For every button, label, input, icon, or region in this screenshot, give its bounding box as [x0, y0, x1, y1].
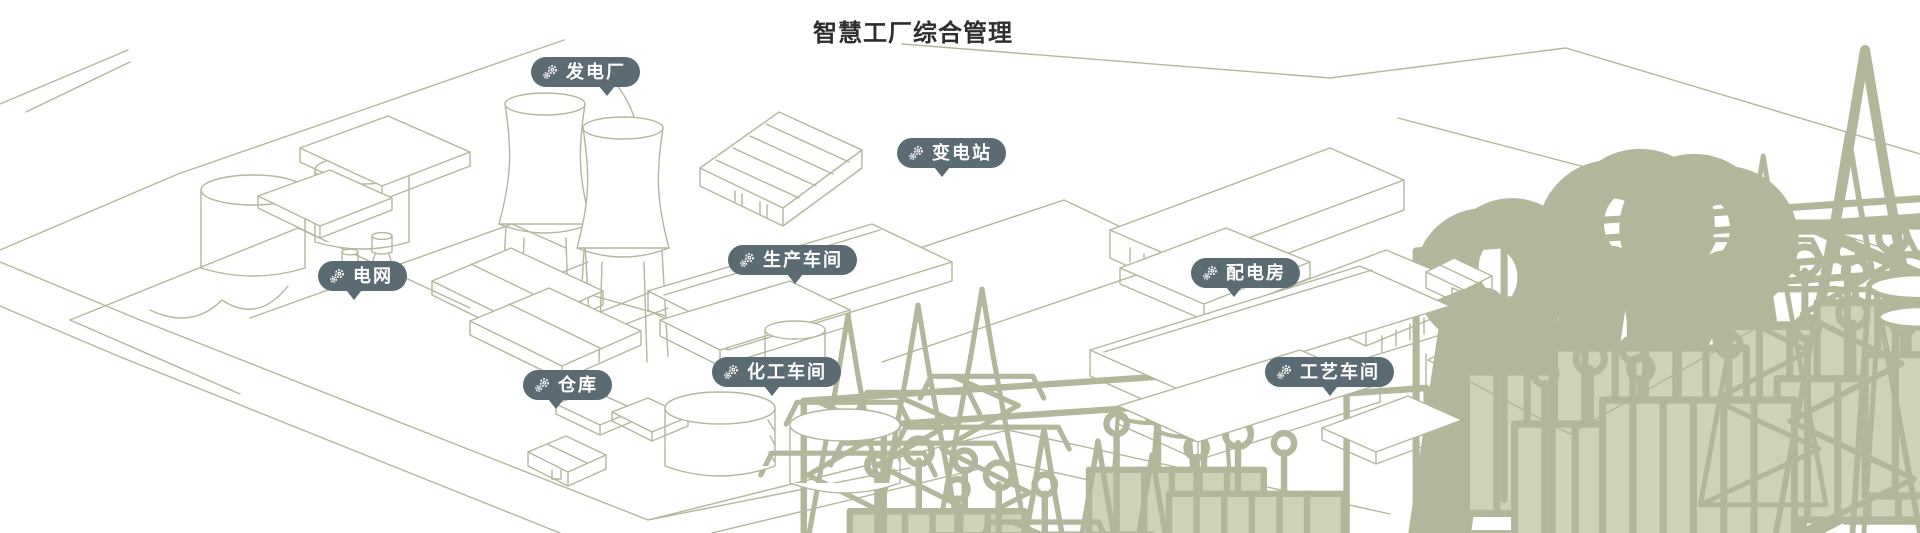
smart-factory-dashboard: 智慧工厂综合管理 发电厂 — [0, 0, 1920, 533]
facility-label-text: 发电厂 — [566, 62, 626, 81]
facility-label-production-workshop[interactable]: 生产车间 — [728, 245, 857, 275]
facility-label-warehouse[interactable]: 仓库 — [523, 370, 612, 400]
facility-label-text: 化工车间 — [747, 362, 827, 381]
facility-label-power-plant[interactable]: 发电厂 — [531, 57, 640, 87]
gears-icon — [738, 251, 756, 269]
facility-label-text: 变电站 — [932, 143, 992, 162]
gears-icon — [533, 376, 551, 394]
facility-label-text: 生产车间 — [763, 250, 843, 269]
facility-label-text: 配电房 — [1226, 263, 1286, 282]
facility-label-distribution-room[interactable]: 配电房 — [1191, 258, 1300, 288]
facility-label-substation[interactable]: 变电站 — [897, 138, 1006, 168]
gears-icon — [328, 267, 346, 285]
facility-labels: 发电厂 变电站 — [0, 0, 1920, 533]
gears-icon — [907, 144, 925, 162]
facility-label-chemical-workshop[interactable]: 化工车间 — [712, 357, 841, 387]
facility-label-process-workshop[interactable]: 工艺车间 — [1265, 357, 1394, 387]
facility-label-text: 电网 — [353, 266, 393, 285]
gears-icon — [722, 363, 740, 381]
gears-icon — [541, 63, 559, 81]
gears-icon — [1201, 264, 1219, 282]
facility-label-power-grid[interactable]: 电网 — [318, 261, 407, 291]
gears-icon — [1275, 363, 1293, 381]
facility-label-text: 工艺车间 — [1300, 362, 1380, 381]
facility-label-text: 仓库 — [558, 375, 598, 394]
